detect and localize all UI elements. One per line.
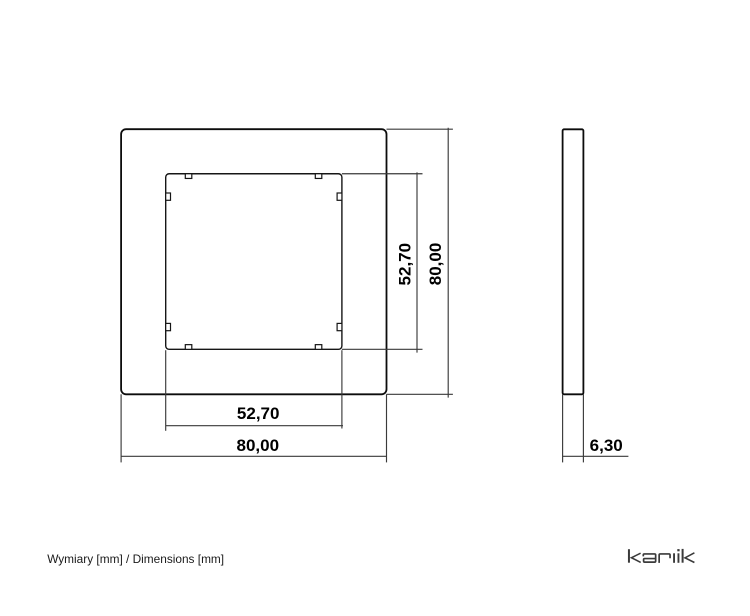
svg-text:Wymiary [mm] / Dimensions [mm]: Wymiary [mm] / Dimensions [mm] [47, 552, 224, 566]
svg-text:80,00: 80,00 [237, 436, 280, 455]
svg-text:52,70: 52,70 [396, 243, 415, 286]
svg-text:80,00: 80,00 [426, 243, 445, 286]
svg-text:52,70: 52,70 [237, 404, 280, 423]
svg-text:6,30: 6,30 [590, 436, 623, 455]
